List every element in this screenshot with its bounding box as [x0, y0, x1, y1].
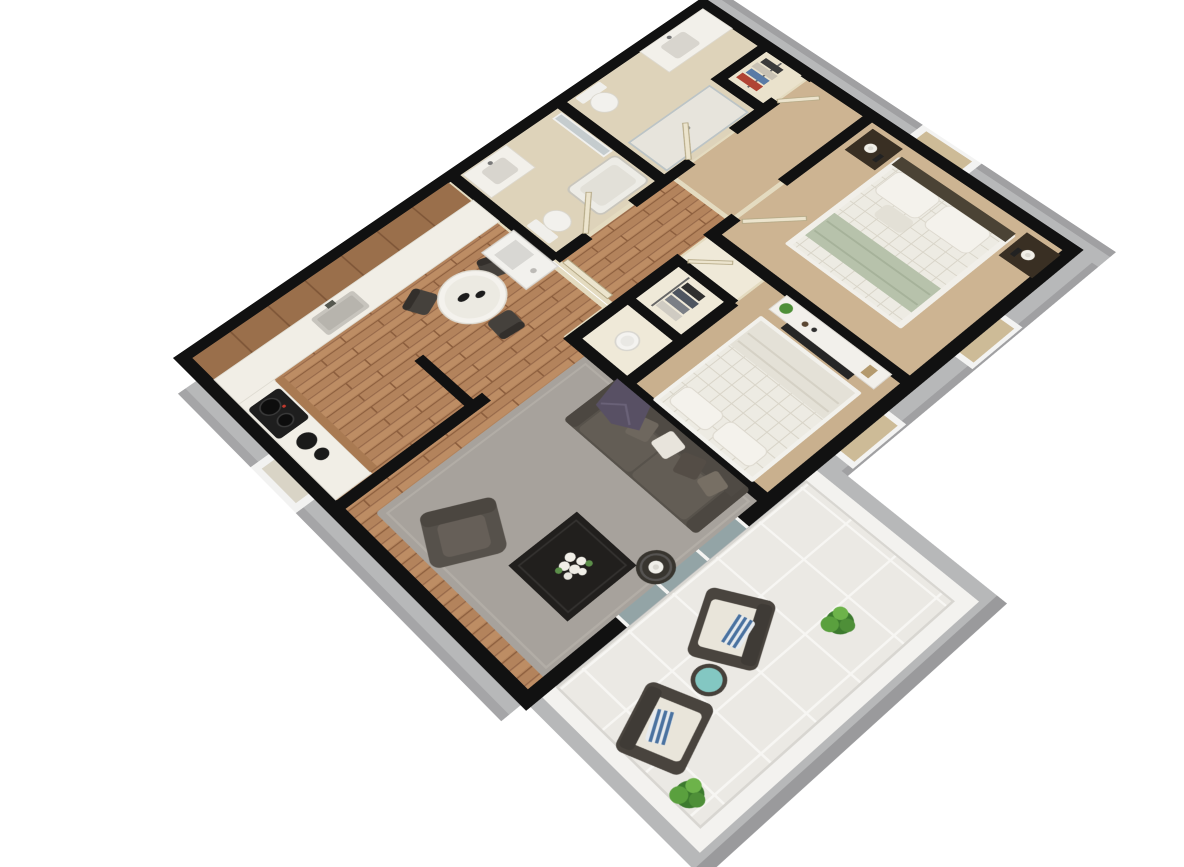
window-bedroom-two	[830, 407, 906, 469]
floor-living-room	[335, 335, 768, 700]
exterior-walls	[183, 3, 1073, 700]
door-bedroom-two	[688, 260, 733, 265]
closet-clothes-rail	[652, 278, 712, 324]
nightstand-right	[999, 232, 1061, 278]
coffee-table	[508, 512, 636, 622]
wall-dining-bath	[446, 172, 560, 263]
parapet-front	[686, 590, 979, 852]
picture-frame	[872, 154, 884, 163]
wall-kitchen-divider	[414, 355, 477, 410]
patio-side-table	[683, 657, 735, 703]
wall-bed2-master	[703, 228, 921, 392]
sofa-arm-bottom	[684, 480, 751, 535]
floors	[183, 3, 1073, 700]
sofa	[563, 378, 750, 534]
headboard	[892, 157, 1016, 242]
master-closet	[735, 54, 789, 92]
patio-armchair-one	[686, 586, 778, 672]
bathtub	[566, 155, 650, 216]
chair-back	[618, 685, 664, 752]
kitchen	[192, 182, 600, 500]
black-bowl-two	[311, 445, 332, 463]
patio-armchair-two	[613, 680, 716, 778]
slab-right	[702, 0, 1116, 267]
faucet	[324, 300, 336, 309]
balcony-floor	[557, 481, 953, 827]
dining-chair-three	[486, 308, 527, 340]
hall-closets	[608, 278, 711, 357]
cooktop	[247, 387, 310, 440]
kitchen-sink	[308, 288, 371, 336]
basin	[480, 156, 520, 185]
decor-tray	[860, 365, 878, 379]
bed-platform	[652, 315, 862, 482]
table-decor-two	[474, 289, 487, 299]
washer-door	[494, 240, 534, 271]
armchair-back	[419, 496, 498, 529]
door-master-bath	[683, 123, 692, 160]
table-decor-one	[456, 291, 472, 303]
clothes-item	[736, 73, 763, 92]
console-plant	[776, 301, 795, 316]
purple-throw	[586, 378, 660, 438]
laundry-hamper	[610, 328, 644, 355]
countertop	[214, 200, 499, 404]
floor-hall-closets	[573, 235, 768, 384]
accent-pillow	[872, 203, 915, 234]
master-bedroom	[752, 129, 1061, 356]
black-bowl-one	[292, 429, 321, 453]
living-room-rug	[376, 355, 761, 679]
sofa-pillow	[672, 451, 708, 480]
rug-border	[387, 364, 748, 667]
sofa-back	[608, 382, 745, 497]
slab-bottom-edge	[830, 248, 1116, 486]
bed-mattress	[659, 320, 855, 476]
walls	[183, 3, 1078, 705]
clothes-item	[656, 300, 683, 321]
striped-pillow	[645, 708, 675, 745]
parapet-left	[539, 682, 714, 853]
floor-plan-stage	[0, 0, 1184, 867]
hall-bathroom	[463, 110, 650, 248]
cabinet-face	[275, 376, 377, 472]
clothes-item	[751, 62, 777, 80]
faucet	[487, 160, 494, 165]
door-master-bedroom	[742, 216, 806, 223]
bed-mattress	[793, 162, 1008, 322]
interior-doors	[527, 62, 899, 336]
media-console	[763, 295, 892, 394]
balcony-plant-one	[817, 604, 862, 643]
teal-table-top	[689, 663, 728, 698]
clothes-item	[672, 288, 699, 309]
countertop-left	[239, 380, 371, 500]
floor-passage	[475, 332, 573, 407]
seat-cushion	[578, 401, 666, 474]
shower	[629, 86, 747, 171]
sofa-arm-top	[563, 378, 628, 429]
pillow	[873, 170, 943, 220]
picture-frame	[1010, 247, 1023, 257]
clothes-item	[681, 282, 705, 301]
sage-runner	[805, 213, 941, 313]
exterior-slab	[158, 0, 1184, 867]
dining-chair-two	[475, 252, 512, 281]
slab-bottom	[811, 235, 1116, 485]
wall-closet-top	[710, 43, 771, 86]
candle	[1018, 248, 1038, 263]
floor-hallway-carpet	[671, 75, 872, 221]
master-bathroom	[571, 9, 801, 171]
parapet-right	[801, 467, 979, 612]
cabinet-dividers	[231, 207, 436, 353]
laundry-unit	[482, 230, 558, 289]
toilet	[575, 81, 626, 118]
sofa-pillow	[624, 414, 660, 443]
tv	[781, 323, 855, 380]
upper-cabinets	[192, 183, 471, 380]
living-room	[394, 371, 765, 682]
pillow	[922, 204, 993, 256]
balcony-plant-two	[665, 772, 714, 817]
door-hall	[563, 259, 612, 299]
balcony	[539, 467, 980, 853]
dining-area	[393, 223, 581, 368]
sofa-pillow	[607, 395, 641, 423]
slab-right-edge	[713, 0, 1116, 257]
candle	[861, 142, 879, 155]
pillow	[710, 420, 770, 469]
pot-one	[256, 395, 285, 419]
clothes-item	[760, 58, 783, 74]
slab-balcony	[525, 456, 1007, 867]
wall-closet-left	[715, 76, 768, 113]
window-master-bedroom	[949, 311, 1022, 369]
throw-folds	[601, 394, 640, 426]
floor-kitchen-dining	[183, 178, 606, 509]
balcony-sliding-door	[616, 517, 749, 628]
slab-left	[178, 377, 527, 721]
decor-bottle	[810, 327, 818, 333]
armchair-seat	[436, 513, 492, 558]
clothes-item	[746, 68, 770, 85]
drain	[684, 125, 691, 130]
floor-master-bathroom	[558, 3, 767, 149]
door-hall-bath	[583, 192, 591, 233]
burner-light	[281, 404, 286, 408]
wall-living-bed2	[563, 331, 778, 510]
nightstand-left	[845, 129, 903, 171]
wall-bath-divider	[553, 99, 668, 185]
floor-hall-bathroom	[451, 102, 664, 259]
drum-side-table	[628, 543, 685, 591]
toilet	[526, 205, 578, 244]
leaning-mirror	[554, 113, 612, 156]
vanity	[463, 145, 535, 198]
door-master-closet	[777, 96, 819, 103]
candle	[645, 558, 666, 576]
vanity	[640, 9, 732, 72]
white-flowers	[550, 546, 597, 586]
decor-bottle	[800, 320, 810, 328]
window-master-side	[905, 125, 981, 177]
floor-plan-3d-projection	[183, 3, 1073, 700]
floor-master-bedroom	[712, 116, 1073, 384]
slab-balcony-edge	[694, 596, 1007, 867]
window-kitchen	[251, 450, 321, 514]
striped-pillow	[721, 614, 757, 650]
clothes-rail	[748, 63, 782, 87]
sofa-pillow-white	[650, 430, 686, 460]
faucet	[666, 35, 673, 40]
basin	[660, 31, 702, 60]
pot-two	[274, 411, 297, 430]
parapet-inner-edge	[557, 481, 953, 827]
clothes-item	[665, 295, 690, 315]
floor-bedroom-two	[627, 276, 911, 501]
floor-master-closet	[719, 46, 811, 110]
sofa-pillow	[696, 470, 729, 498]
dining-table	[424, 260, 521, 335]
dining-chair-one	[401, 288, 440, 317]
floor-hallway-wood	[555, 173, 736, 308]
seat-cushion	[630, 446, 721, 522]
chair-back	[740, 603, 774, 668]
floor-plan-svg	[90, 0, 1184, 867]
wall-kitchen-living	[331, 393, 491, 514]
bedroom-two	[652, 295, 891, 485]
pillow	[667, 385, 725, 432]
folded-duvet	[730, 320, 855, 418]
bed-skirt	[785, 157, 1016, 329]
armchair	[419, 496, 509, 570]
floor-master-bathroom-ext	[616, 76, 763, 181]
slab-left-edge	[178, 389, 509, 722]
